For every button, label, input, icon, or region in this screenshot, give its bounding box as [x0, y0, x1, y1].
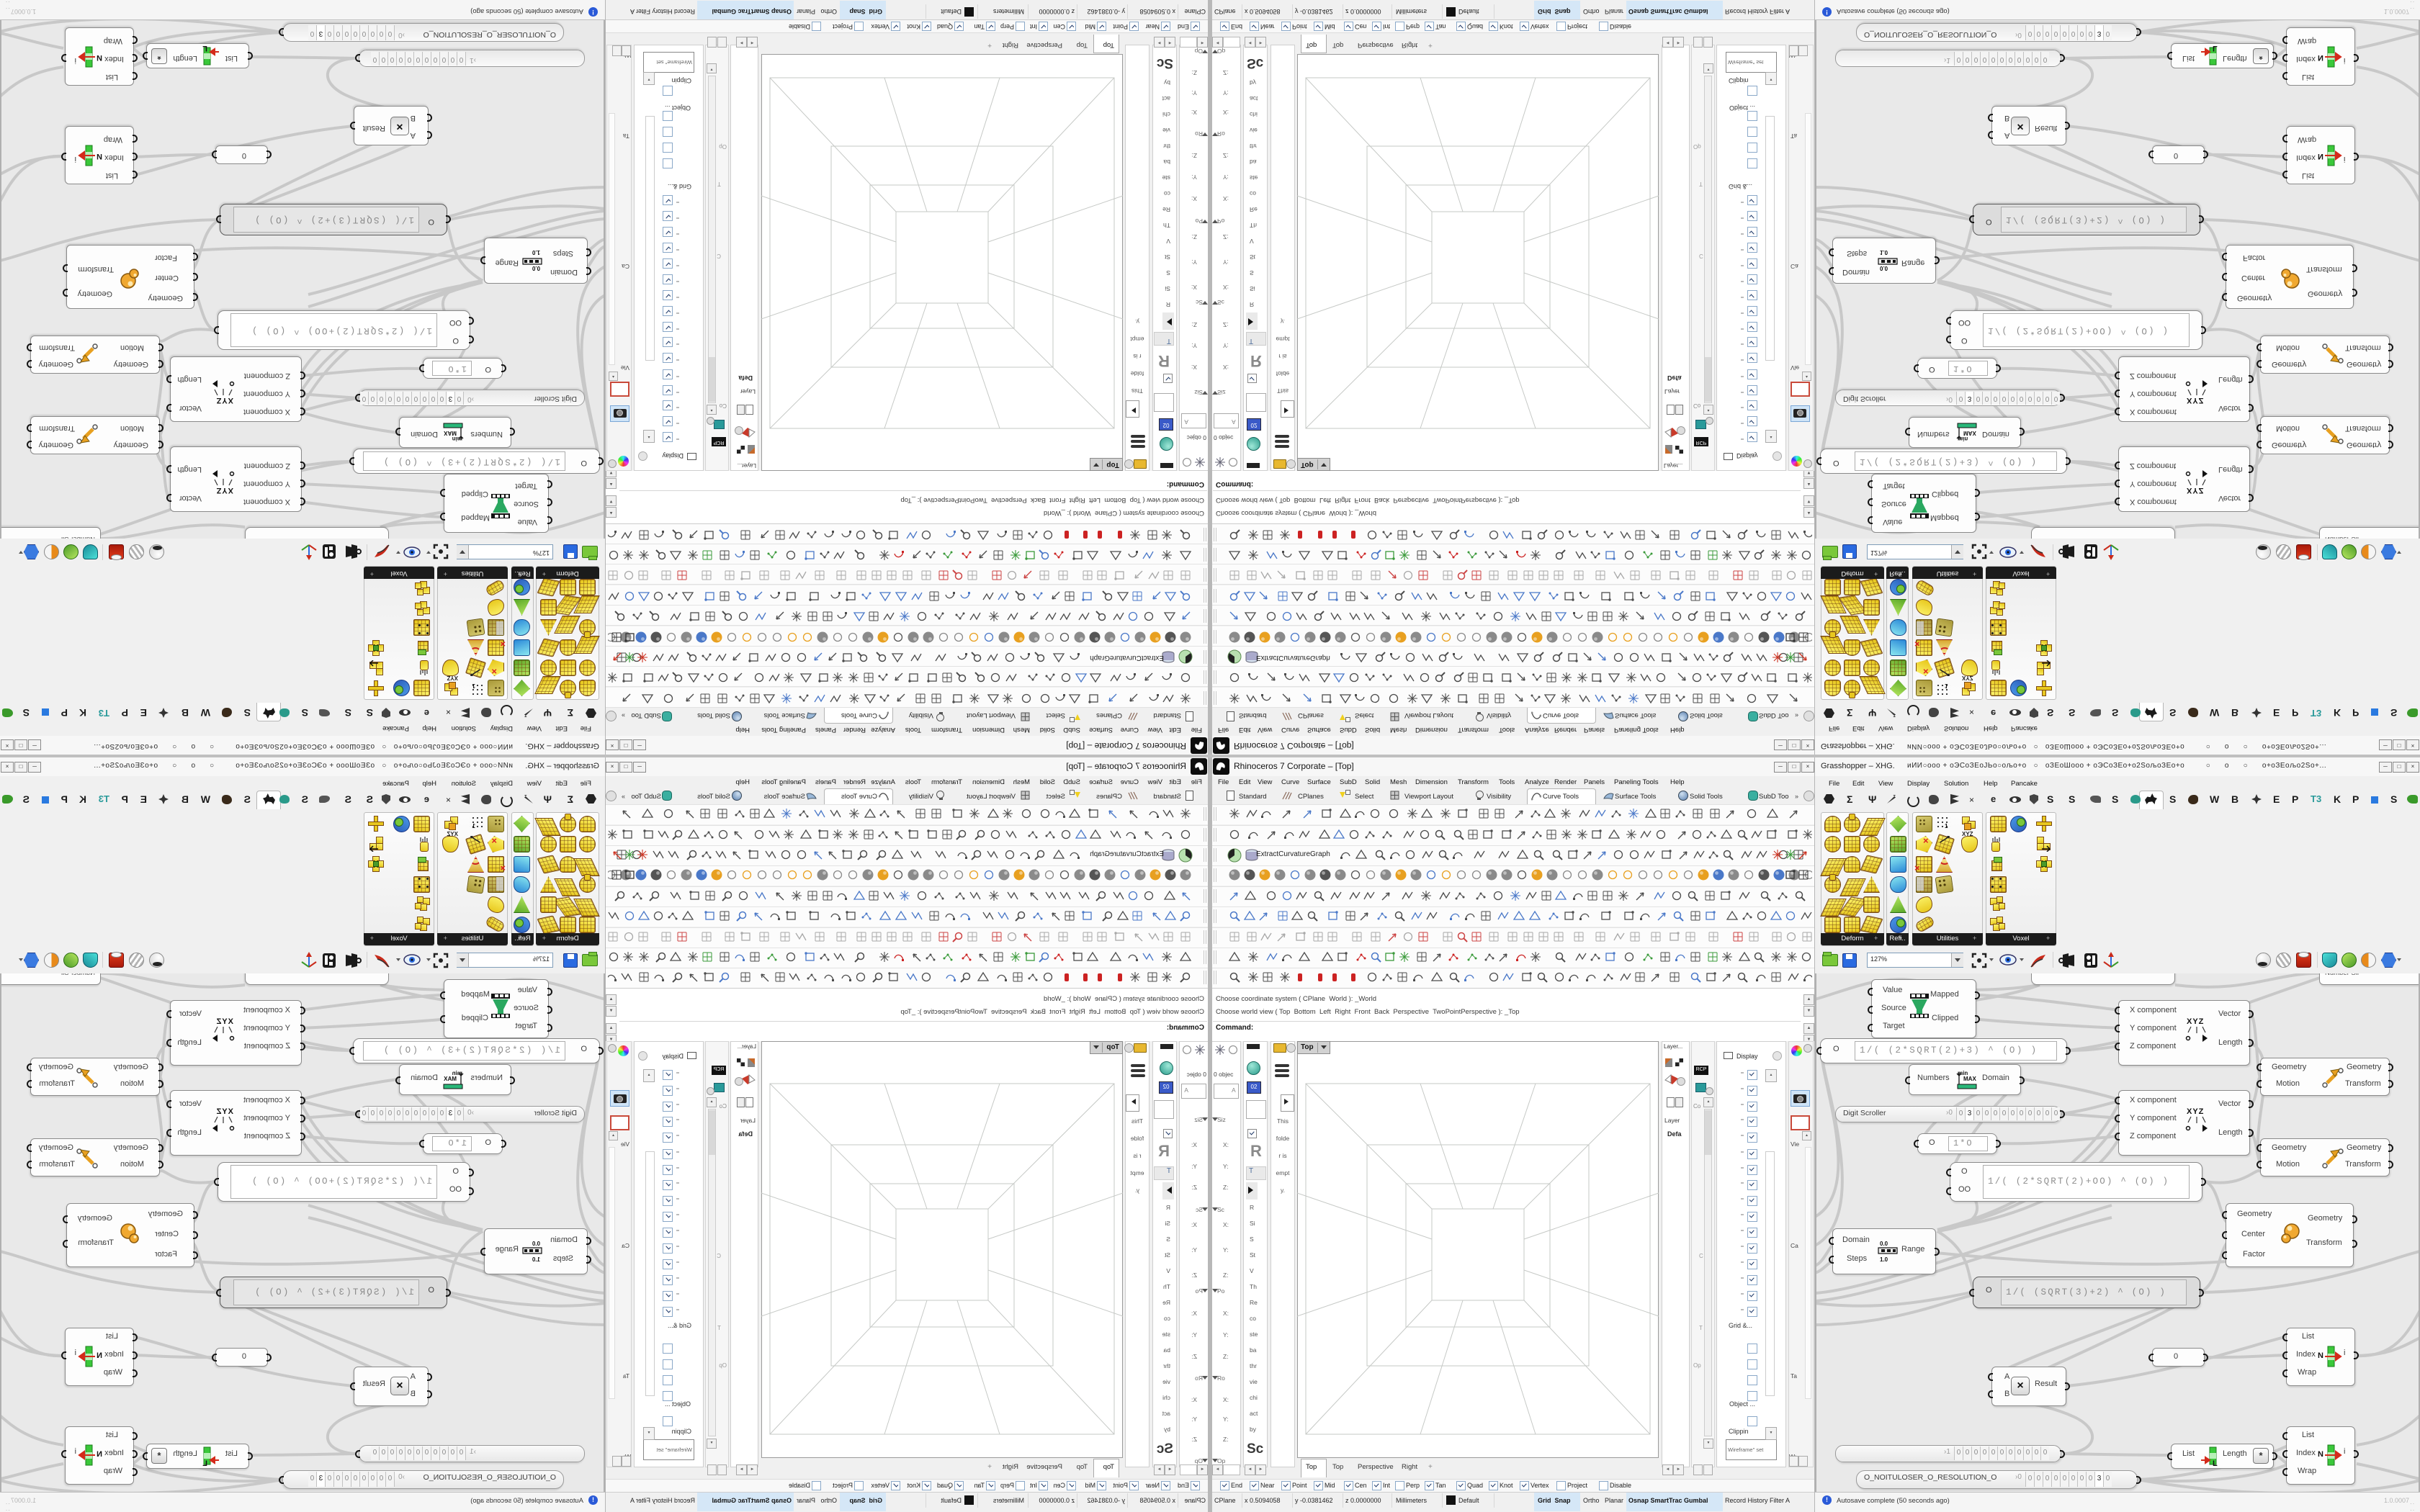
- svg-text:N: N: [97, 53, 102, 62]
- svg-text:N: N: [97, 1450, 102, 1459]
- svg-text:N: N: [97, 152, 102, 161]
- svg-text:0.0: 0.0: [532, 1241, 540, 1247]
- svg-text:N: N: [2318, 53, 2323, 62]
- svg-text:0.0: 0.0: [1880, 1241, 1888, 1247]
- svg-text:XYZ: XYZ: [216, 1017, 233, 1026]
- svg-text:N: N: [97, 1351, 102, 1360]
- svg-text:1.0: 1.0: [1880, 1256, 1888, 1263]
- svg-text:XYZ: XYZ: [2187, 1017, 2204, 1026]
- svg-text:1.0: 1.0: [532, 1256, 540, 1263]
- svg-text:L: L: [202, 1459, 207, 1467]
- svg-text:L: L: [202, 45, 207, 53]
- svg-text:L: L: [2213, 45, 2218, 53]
- svg-text:XYZ: XYZ: [216, 1107, 233, 1116]
- svg-text:N: N: [2318, 1450, 2323, 1459]
- svg-text:1.0: 1.0: [532, 249, 540, 256]
- svg-text:N: N: [2318, 1351, 2323, 1360]
- svg-text:1.0: 1.0: [1880, 249, 1888, 256]
- svg-text:XYZ: XYZ: [216, 486, 233, 495]
- svg-text:MAX: MAX: [444, 430, 457, 436]
- svg-text:XYZ: XYZ: [2187, 1107, 2204, 1116]
- svg-text:XYZ: XYZ: [216, 396, 233, 405]
- svg-text:MAX: MAX: [1963, 1076, 1976, 1082]
- svg-text:0.0: 0.0: [1880, 265, 1888, 271]
- svg-text:MAX: MAX: [444, 1076, 457, 1082]
- svg-text:XYZ: XYZ: [2187, 486, 2204, 495]
- svg-text:0.0: 0.0: [532, 265, 540, 271]
- svg-text:MAX: MAX: [1963, 430, 1976, 436]
- svg-text:XYZ: XYZ: [2187, 396, 2204, 405]
- svg-text:N: N: [2318, 152, 2323, 161]
- svg-text:L: L: [2213, 1459, 2218, 1467]
